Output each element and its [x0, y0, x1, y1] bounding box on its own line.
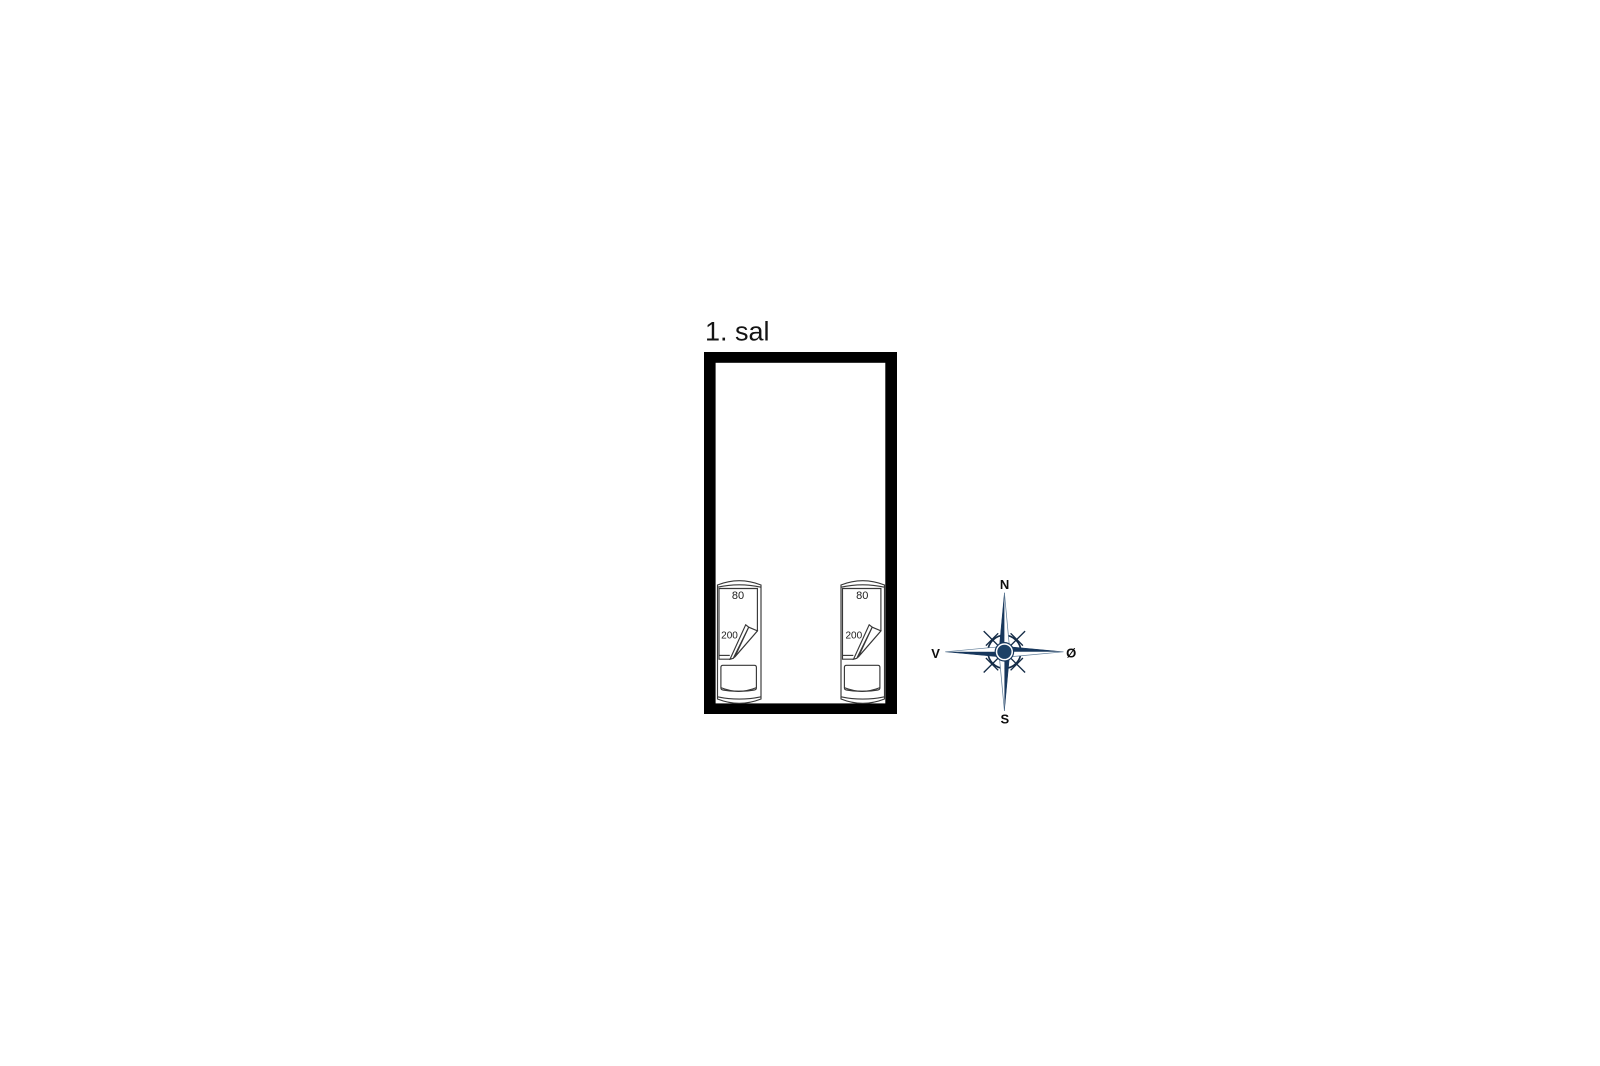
svg-text:S: S — [1000, 712, 1009, 727]
svg-text:1. sal: 1. sal — [705, 317, 770, 347]
svg-text:200: 200 — [721, 630, 738, 641]
svg-text:80: 80 — [856, 590, 868, 602]
svg-text:200: 200 — [845, 630, 862, 641]
svg-text:80: 80 — [732, 590, 744, 602]
svg-text:Ø: Ø — [1066, 646, 1076, 661]
svg-text:V: V — [931, 646, 940, 661]
svg-text:N: N — [1000, 577, 1009, 592]
